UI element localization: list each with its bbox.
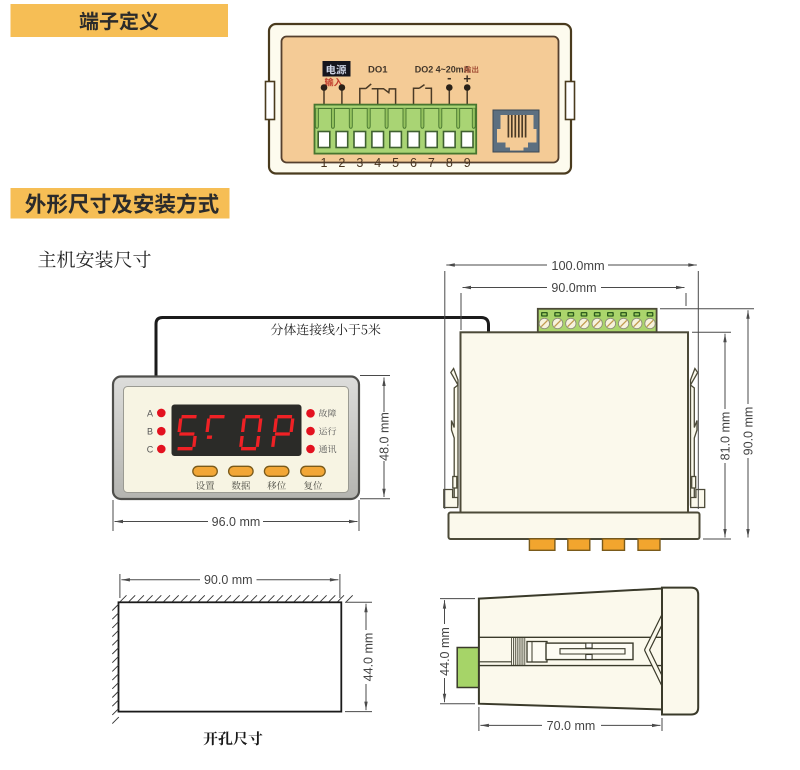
svg-text:7: 7 — [428, 156, 435, 170]
svg-text:3: 3 — [356, 156, 363, 170]
svg-text:2: 2 — [338, 156, 345, 170]
svg-text:48.0 mm: 48.0 mm — [378, 412, 392, 461]
svg-text:DO2 4~20mA: DO2 4~20mA — [415, 64, 471, 74]
svg-text:A: A — [147, 408, 153, 418]
svg-text:70.0 mm: 70.0 mm — [547, 719, 596, 733]
svg-text:DO1: DO1 — [368, 64, 388, 75]
svg-text:44.0 mm: 44.0 mm — [438, 627, 452, 676]
svg-text:9: 9 — [464, 156, 471, 170]
svg-text:90.0mm: 90.0mm — [551, 281, 596, 295]
svg-text:96.0 mm: 96.0 mm — [212, 515, 261, 529]
svg-text:90.0 mm: 90.0 mm — [204, 573, 253, 587]
svg-text:1: 1 — [321, 156, 328, 170]
svg-text:C: C — [147, 444, 154, 454]
svg-text:5: 5 — [392, 156, 399, 170]
svg-text:44.0 mm: 44.0 mm — [362, 633, 376, 682]
svg-text:100.0mm: 100.0mm — [551, 258, 604, 273]
svg-text:81.0 mm: 81.0 mm — [719, 412, 733, 461]
svg-text:B: B — [147, 427, 153, 437]
svg-text:90.0 mm: 90.0 mm — [742, 407, 756, 456]
svg-text:-: - — [447, 70, 451, 85]
svg-text:+: + — [463, 71, 471, 86]
svg-text:6: 6 — [410, 156, 417, 170]
svg-text:4: 4 — [374, 156, 381, 170]
svg-text:8: 8 — [446, 156, 453, 170]
